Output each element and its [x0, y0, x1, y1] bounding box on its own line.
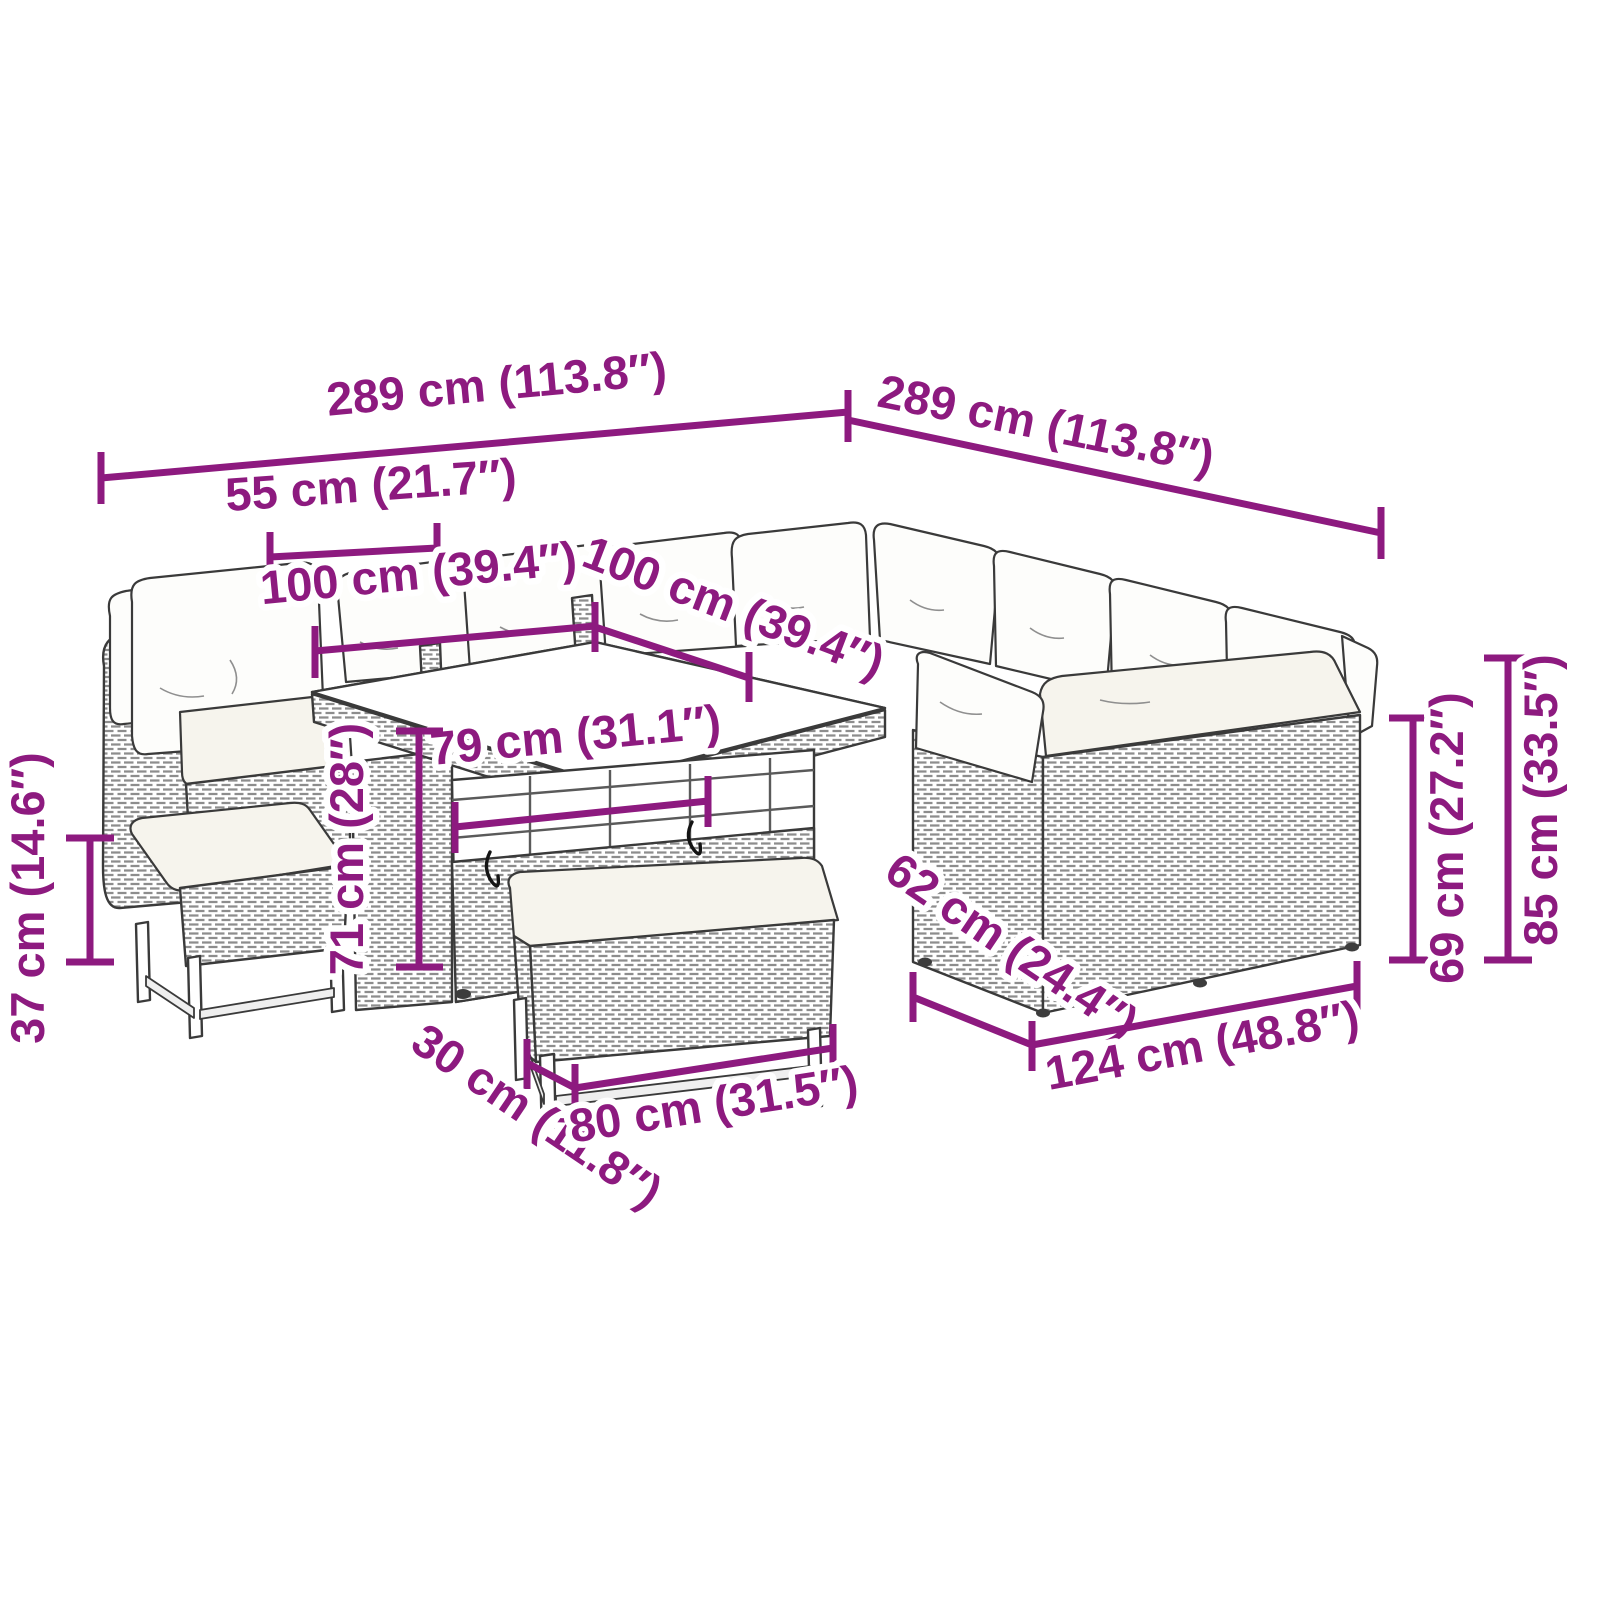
dimension-label-bench-height: 37 cm (14.6″) — [1, 752, 54, 1044]
dimension-label-table-height: 71 cm (28″) — [320, 723, 373, 975]
diagram-canvas: 289 cm (113.8″) 289 cm (113.8″) 55 cm (2… — [0, 0, 1600, 1600]
dimension-label-total-height: 85 cm (33.5″) — [1514, 654, 1567, 946]
product-dimension-diagram: 289 cm (113.8″) 289 cm (113.8″) 55 cm (2… — [0, 0, 1600, 1600]
bench-left-crossbars — [146, 976, 334, 1019]
dim-bench-height: 37 cm (14.6″) — [1, 752, 114, 1044]
dimension-label-seat-height: 69 cm (27.2″) — [1420, 692, 1473, 984]
dim-total-height: 85 cm (33.5″) — [1484, 654, 1567, 960]
bench-center-skirt — [530, 920, 834, 1062]
right-back-pillow — [994, 551, 1116, 692]
dim-seat-height: 69 cm (27.2″) — [1389, 692, 1473, 984]
right-back-pillow — [874, 524, 1000, 664]
dimension-label-back-width-right: 289 cm (113.8″) — [874, 364, 1219, 484]
sofa-right-module — [913, 652, 1360, 1018]
dimension-label-corner-section-width: 55 cm (21.7″) — [224, 448, 519, 521]
dimension-label-back-width-left: 289 cm (113.8″) — [324, 341, 669, 425]
dim-back-width-right: 289 cm (113.8″) — [848, 364, 1381, 559]
bench-left — [130, 803, 348, 1038]
